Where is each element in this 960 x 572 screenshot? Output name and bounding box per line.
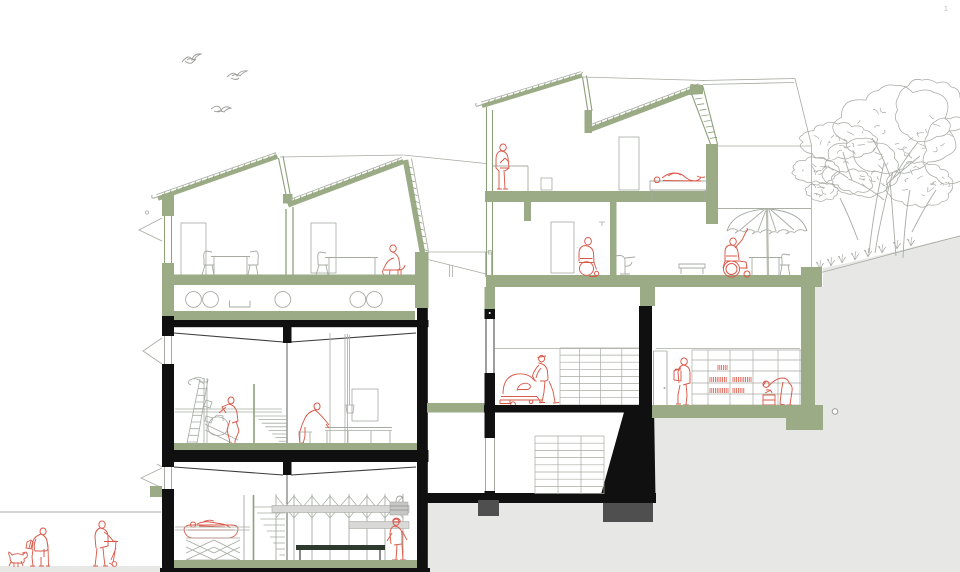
svg-text:1: 1 <box>944 6 948 13</box>
